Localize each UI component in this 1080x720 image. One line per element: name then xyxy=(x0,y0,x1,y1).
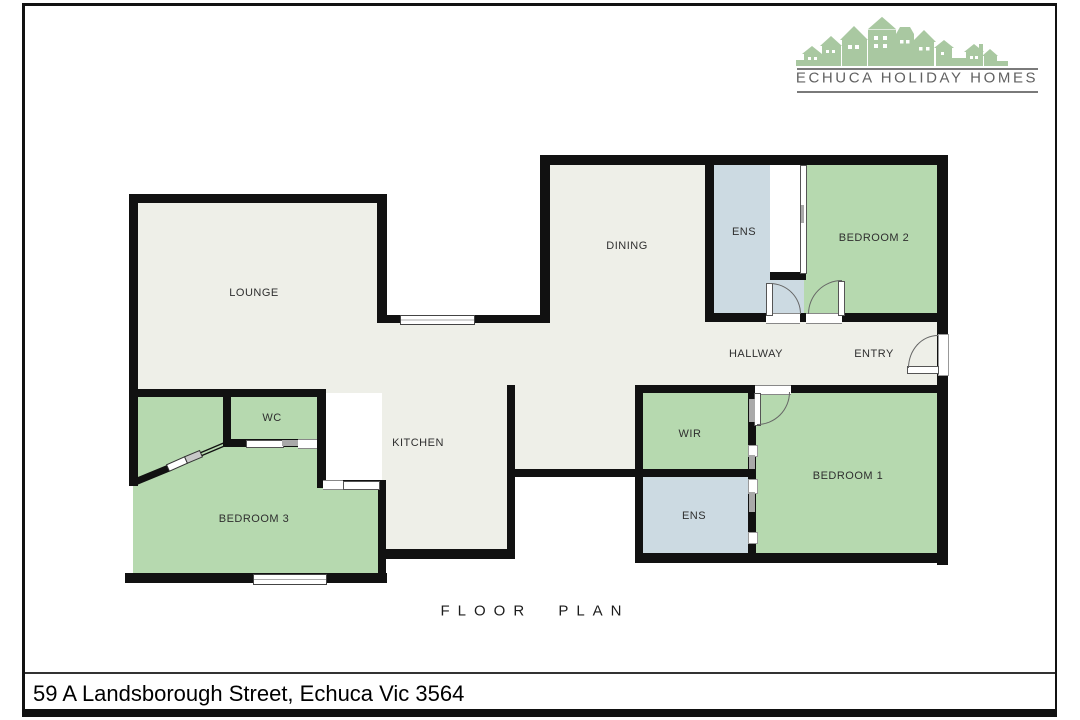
robe-slider-panel xyxy=(801,205,805,223)
bedroom2-door-opening xyxy=(806,313,842,324)
wall-kitchen-right xyxy=(507,385,515,557)
wall-north xyxy=(540,155,948,165)
room-label-lounge: LOUNGE xyxy=(229,287,278,299)
ens-bottom-slider-panel-1 xyxy=(749,492,755,512)
wall-dining-left xyxy=(540,155,550,323)
room-label-wc: WC xyxy=(262,412,281,424)
bedroom3-ext-door-opening xyxy=(323,480,343,490)
entry-door-opening xyxy=(938,334,949,376)
courtyard-window xyxy=(400,315,475,325)
room-label-ens-top: ENS xyxy=(732,226,756,238)
room-label-kitchen: KITCHEN xyxy=(392,437,444,449)
property-address: 59 A Landsborough Street, Echuca Vic 356… xyxy=(33,681,464,707)
bedroom3-diagonal-sliding-door xyxy=(125,435,235,490)
wall-ens-top-left xyxy=(705,165,714,318)
wall-lounge-right xyxy=(377,194,387,323)
room-label-entry: ENTRY xyxy=(854,348,894,360)
wall-south-east xyxy=(635,553,948,563)
plan-title: FLOOR PLAN xyxy=(440,603,629,620)
wir-slider-panel-1 xyxy=(749,399,755,422)
wall-lounge-top xyxy=(129,194,387,203)
wall-kitchen-south xyxy=(378,549,515,559)
wc-door-leaf xyxy=(246,440,284,449)
room-fill-bedroom3-ext xyxy=(322,484,383,577)
wall-bedroom3-right xyxy=(378,483,386,583)
room-label-wir: WIR xyxy=(679,428,702,440)
room-label-hallway: HALLWAY xyxy=(729,348,783,360)
wall-nook-south xyxy=(507,469,643,477)
room-label-bedroom1: BEDROOM 1 xyxy=(813,470,884,482)
bedroom3-ext-door-leaf xyxy=(343,481,380,490)
room-label-dining: DINING xyxy=(606,240,648,252)
room-label-ens-bottom: ENS xyxy=(682,510,706,522)
wall-wc-right xyxy=(317,389,326,488)
wall-wir-south xyxy=(643,469,748,477)
wc-door-slider-panel xyxy=(282,440,298,446)
wc-door-opening xyxy=(298,439,317,449)
room-label-bedroom2: BEDROOM 2 xyxy=(839,232,910,244)
room-fill-hall-nook xyxy=(510,392,643,474)
wir-slider-panel-2 xyxy=(749,455,755,469)
room-fill-ens-top xyxy=(710,165,772,318)
room-label-bedroom3: BEDROOM 3 xyxy=(219,513,290,525)
wall-hallway-south xyxy=(635,385,948,393)
divider-gap-3 xyxy=(748,532,758,544)
floor-plan-page: ECHUCA HOLIDAY HOMES LOUNGE DINING ENS B… xyxy=(0,0,1080,720)
bedroom3-window xyxy=(253,574,327,585)
